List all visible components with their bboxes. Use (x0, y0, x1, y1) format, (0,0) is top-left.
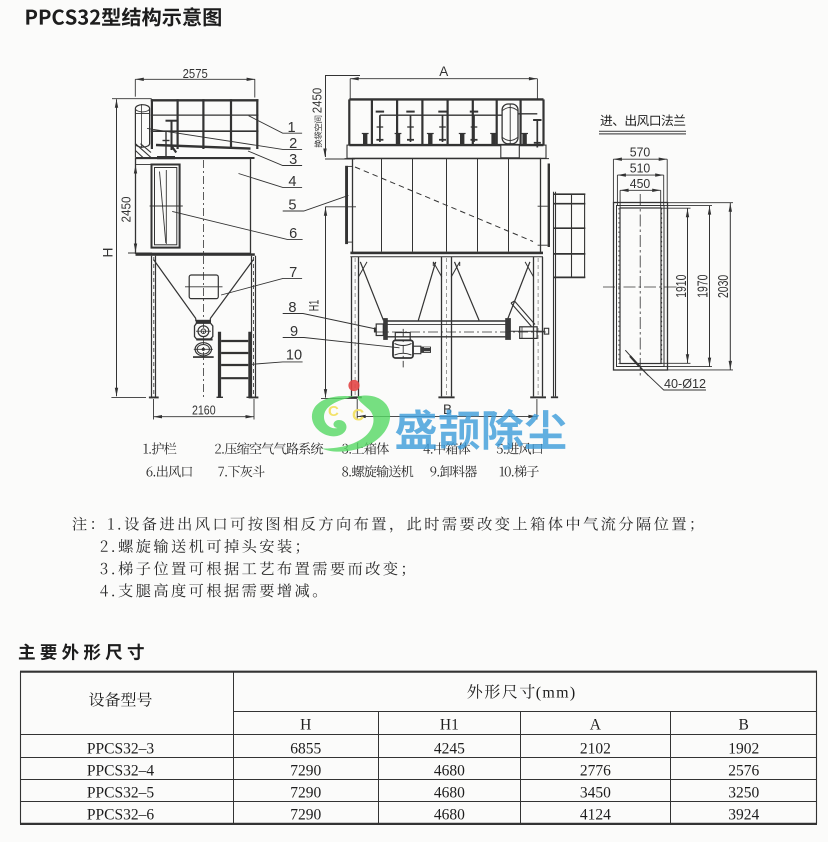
svg-text:6855: 6855 (290, 740, 321, 757)
svg-text:7: 7 (289, 265, 297, 281)
svg-text:570: 570 (630, 145, 651, 160)
svg-text:C: C (352, 406, 364, 425)
svg-text:4680: 4680 (434, 807, 465, 824)
svg-text:6: 6 (289, 226, 297, 242)
svg-text:PPCS32–3: PPCS32–3 (87, 740, 154, 757)
svg-text:PPCS32–4: PPCS32–4 (87, 762, 154, 779)
svg-text:7290: 7290 (290, 762, 321, 779)
svg-text:H1: H1 (307, 300, 322, 312)
svg-text:PPCS32–6: PPCS32–6 (87, 807, 154, 824)
svg-text:450: 450 (630, 176, 651, 191)
svg-text:C: C (328, 403, 339, 420)
svg-text:3924: 3924 (728, 807, 759, 824)
svg-text:40-Ø12: 40-Ø12 (664, 376, 706, 391)
svg-text:3250: 3250 (728, 784, 759, 801)
svg-text:4680: 4680 (434, 762, 465, 779)
svg-text:2450: 2450 (310, 88, 325, 114)
svg-text:3450: 3450 (580, 784, 611, 801)
svg-text:4245: 4245 (434, 740, 465, 757)
svg-text:A: A (439, 64, 448, 79)
svg-text:510: 510 (630, 161, 651, 176)
svg-text:10: 10 (286, 348, 302, 364)
svg-text:4124: 4124 (580, 807, 611, 824)
svg-text:5: 5 (288, 198, 296, 214)
svg-text:H: H (300, 717, 311, 734)
svg-text:8: 8 (288, 300, 296, 316)
svg-text:1902: 1902 (728, 740, 759, 757)
svg-text:7290: 7290 (290, 807, 321, 824)
svg-text:2160: 2160 (192, 403, 216, 418)
svg-text:H: H (101, 248, 116, 258)
svg-text:7290: 7290 (290, 784, 321, 801)
svg-text:2102: 2102 (580, 740, 611, 757)
svg-text:3: 3 (289, 152, 297, 168)
svg-text:4: 4 (288, 174, 296, 190)
svg-text:1970: 1970 (696, 275, 712, 298)
svg-text:(mm): (mm) (536, 685, 577, 702)
svg-text:2575: 2575 (183, 66, 208, 81)
svg-text:PPCS32–5: PPCS32–5 (87, 784, 154, 801)
svg-text:2450: 2450 (118, 197, 133, 223)
svg-text:2: 2 (289, 136, 297, 152)
svg-text:9: 9 (290, 324, 298, 340)
svg-text:A: A (590, 717, 602, 734)
svg-text:2576: 2576 (728, 762, 759, 779)
svg-text:1910: 1910 (674, 275, 690, 298)
svg-text:2030: 2030 (716, 275, 732, 298)
svg-text:1: 1 (288, 120, 296, 136)
svg-text:2776: 2776 (580, 762, 611, 779)
svg-text:B: B (739, 717, 749, 734)
svg-text:H1: H1 (440, 717, 459, 734)
svg-text:4680: 4680 (434, 784, 465, 801)
